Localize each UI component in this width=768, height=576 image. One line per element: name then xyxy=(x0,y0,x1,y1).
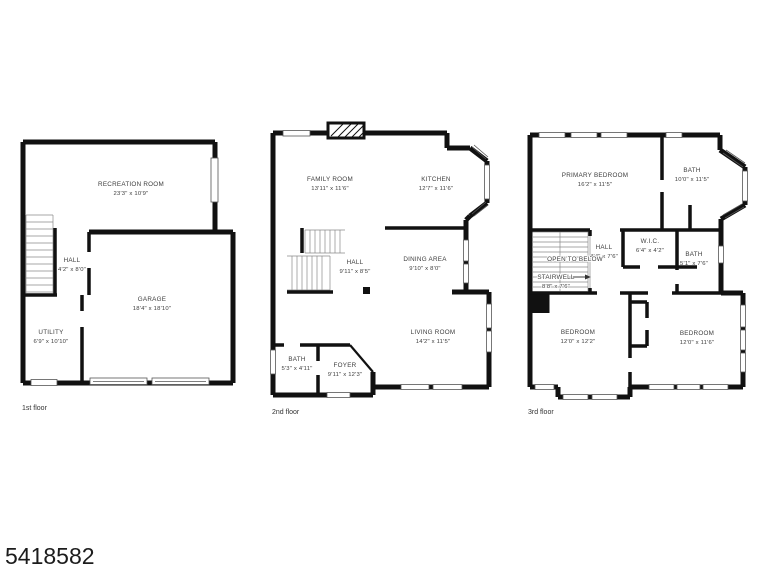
room-label-primary-bedroom: PRIMARY BEDROOM xyxy=(562,172,629,179)
room-dims-stairwell: 8'8" x 7'6" xyxy=(542,284,570,290)
floor-label-3rd: 3rd floor xyxy=(528,409,554,416)
room-label-hall-2nd: HALL xyxy=(347,259,364,266)
room-dims-primary-bedroom: 16'2" x 11'5" xyxy=(578,182,612,188)
open-to-below-label: OPEN TO BELOW xyxy=(547,256,603,263)
staircase-1st xyxy=(26,215,53,293)
room-label-family-room: FAMILY ROOM xyxy=(307,176,353,183)
room-label-kitchen: KITCHEN xyxy=(421,176,451,183)
room-label-utility: UTILITY xyxy=(38,329,64,336)
room-label-bath-top: BATH xyxy=(683,167,701,174)
room-label-bath-mid: BATH xyxy=(685,251,703,258)
room-dims-utility: 6'9" x 10'10" xyxy=(34,339,69,345)
room-label-bath-2nd: BATH xyxy=(288,356,306,363)
room-label-living-room: LIVING ROOM xyxy=(411,329,456,336)
room-label-recreation-room: RECREATION ROOM xyxy=(98,181,164,188)
room-dims-bath-top: 10'0" x 11'5" xyxy=(675,177,709,183)
wall-post xyxy=(363,287,370,294)
floorplan-sheet: RECREATION ROOM 23'3" x 10'9" HALL 4'2" … xyxy=(0,0,768,576)
room-label-garage: GARAGE xyxy=(138,296,166,303)
room-dims-bath-mid: 5'1" x 7'6" xyxy=(680,261,708,267)
room-label-hall-3rd: HALL xyxy=(596,244,613,251)
room-dims-bedroom-left: 12'0" x 12'2" xyxy=(561,339,596,345)
floorplan-1st-floor: RECREATION ROOM 23'3" x 10'9" HALL 4'2" … xyxy=(18,126,240,422)
room-dims-garage: 18'4" x 18'10" xyxy=(133,306,171,312)
interior-walls xyxy=(23,228,89,383)
room-label-stairwell: STAIRWELL xyxy=(537,274,575,281)
floor-label-1st: 1st floor xyxy=(22,405,48,412)
room-label-wic: W.I.C. xyxy=(641,238,660,245)
floorplan-2nd-floor: FAMILY ROOM 13'11" x 11'6" KITCHEN 12'7"… xyxy=(266,106,506,422)
room-dims-foyer: 9'11" x 12'3" xyxy=(328,372,362,378)
room-dims-dining-area: 9'10" x 8'0" xyxy=(409,266,440,272)
room-label-bedroom-right: BEDROOM xyxy=(680,330,714,337)
chimney xyxy=(328,123,364,138)
room-dims-kitchen: 12'7" x 11'6" xyxy=(419,186,453,192)
room-dims-living-room: 14'2" x 11'5" xyxy=(416,339,450,345)
floor-label-2nd: 2nd floor xyxy=(272,409,300,416)
room-dims-hall-1st: 4'2" x 8'0" xyxy=(58,267,86,273)
floorplan-3rd-floor: PRIMARY BEDROOM 16'2" x 11'5" BATH 10'0"… xyxy=(520,116,768,422)
room-dims-hall-2nd: 9'11" x 8'5" xyxy=(340,269,371,275)
staircase-2nd xyxy=(287,230,345,290)
room-label-foyer: FOYER xyxy=(334,362,357,369)
room-dims-recreation-room: 23'3" x 10'9" xyxy=(114,191,149,197)
room-dims-family-room: 13'11" x 11'6" xyxy=(311,186,349,192)
room-dims-bath-2nd: 5'3" x 4'11" xyxy=(282,366,313,372)
room-dims-wic: 6'4" x 4'2" xyxy=(636,248,664,254)
room-label-hall-1st: HALL xyxy=(64,257,81,264)
listing-id: 5418582 xyxy=(5,543,95,570)
chimney xyxy=(529,293,550,313)
room-label-bedroom-left: BEDROOM xyxy=(561,329,595,336)
room-dims-bedroom-right: 12'0" x 11'6" xyxy=(680,340,714,346)
room-label-dining-area: DINING AREA xyxy=(403,256,447,263)
